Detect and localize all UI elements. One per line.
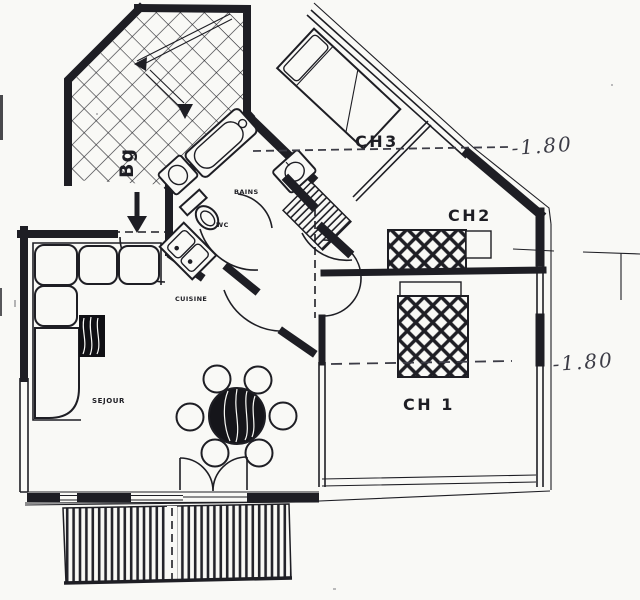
plant (79, 315, 105, 357)
chair (246, 440, 273, 467)
chair (177, 404, 204, 431)
entry-arrow-icon (127, 192, 147, 233)
sofa-cushion (79, 246, 117, 284)
floor-plan-drawing: Bg (0, 0, 640, 600)
chair (270, 403, 297, 430)
sofa-cushion (35, 286, 77, 326)
ch3-wall-ne-thick (468, 153, 540, 214)
room-label-ch2: CH2 (448, 206, 492, 225)
dining-table-set (177, 366, 297, 467)
ch2-ch1-divider-wall (324, 270, 543, 273)
ch2-bed (388, 230, 466, 272)
room-label-ch1: CH 1 (403, 395, 455, 414)
chair (202, 440, 229, 467)
room-label-bains: BAINS (234, 188, 259, 196)
cuisine-room: CUISINE (160, 223, 312, 352)
room-label-ch3: CH3 (355, 132, 399, 151)
bains-door-arc (238, 194, 272, 228)
lower-deck (63, 504, 292, 583)
dim-label-lower: -1.80 (552, 348, 615, 376)
ch2-pillow (466, 231, 491, 258)
ch3-bed (277, 29, 400, 149)
deck-gap (167, 506, 177, 581)
room-label-sejour: SEJOUR (92, 397, 125, 405)
stairwell-label: Bg (116, 148, 138, 178)
room-label-wc: WC (216, 221, 229, 229)
ch1-bottom-window (322, 475, 536, 486)
sejour-wall-bottom (25, 492, 319, 503)
sofa-cushion (119, 246, 159, 284)
stairs (283, 180, 351, 252)
chair (204, 366, 231, 393)
ch1-pillow (400, 282, 461, 296)
sofa-cushion (35, 245, 77, 285)
ch1-room: -1.80 CH 1 (319, 282, 614, 487)
dim-label-upper: -1.80 (511, 132, 574, 160)
ch2-room: CH2 (324, 206, 543, 273)
sejour-door-arc (224, 290, 286, 331)
room-label-cuisine: CUISINE (175, 295, 207, 303)
hall (283, 180, 361, 318)
floor-plan-scan: Bg (0, 0, 640, 600)
ch1-bed (398, 296, 468, 377)
sejour-room: SEJOUR (20, 230, 319, 503)
sejour-window-left (20, 378, 28, 492)
sofa-cushion (35, 328, 79, 418)
ch1-west-window (319, 362, 325, 487)
sill-ticks (513, 249, 640, 300)
east-wall-windows (537, 262, 543, 487)
